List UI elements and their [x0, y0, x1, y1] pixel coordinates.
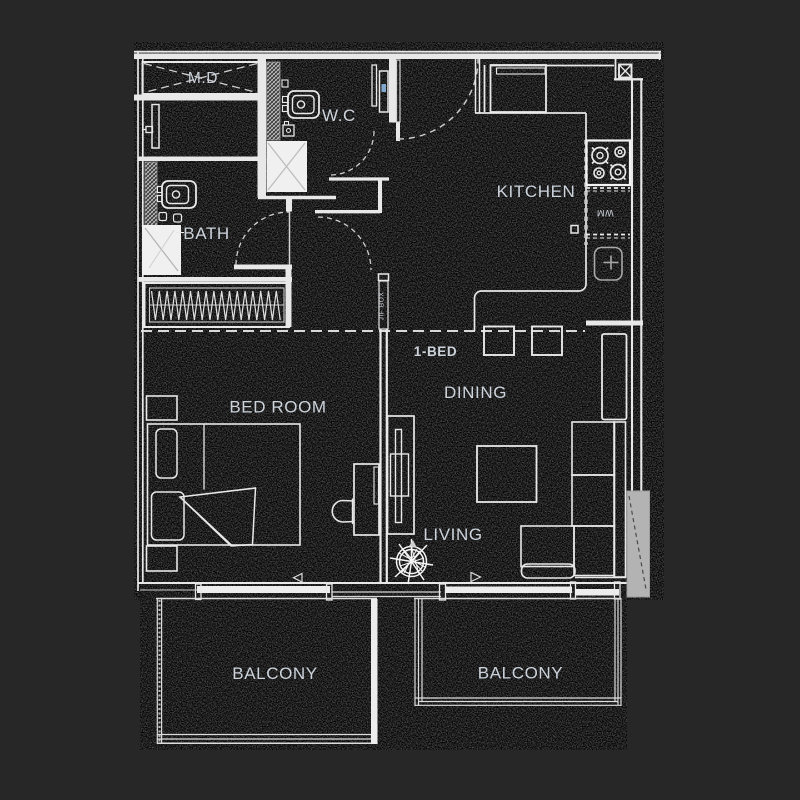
svg-text:1-BED: 1-BED [414, 344, 458, 359]
svg-text:LIVING: LIVING [423, 525, 482, 544]
svg-text:BED ROOM: BED ROOM [229, 398, 326, 417]
svg-text:DINING: DINING [444, 383, 507, 402]
svg-text:BALCONY: BALCONY [478, 664, 563, 683]
svg-text:WM: WM [596, 208, 613, 218]
svg-text:M.D: M.D [188, 70, 218, 87]
svg-text:W.C: W.C [322, 106, 356, 125]
svg-text:JIF BOX: JIF BOX [379, 292, 386, 321]
svg-text:BATH: BATH [183, 224, 229, 243]
svg-text:KITCHEN: KITCHEN [497, 182, 576, 201]
svg-text:BALCONY: BALCONY [232, 664, 317, 683]
